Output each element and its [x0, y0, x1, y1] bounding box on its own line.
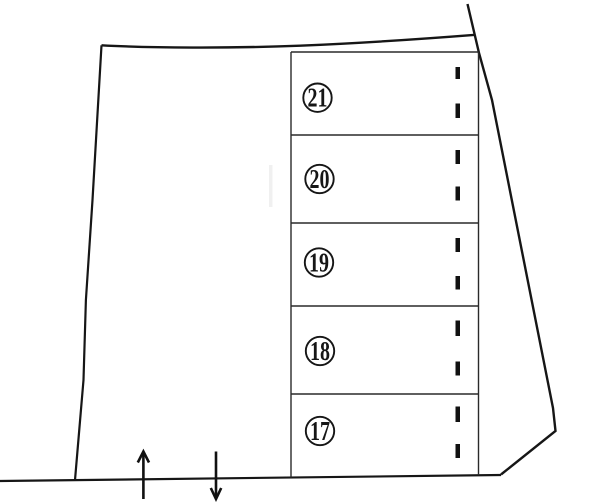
svg-text:17: 17 — [310, 416, 330, 446]
svg-text:20: 20 — [310, 164, 330, 194]
svg-text:21: 21 — [308, 83, 328, 113]
svg-text:18: 18 — [310, 336, 330, 366]
svg-text:19: 19 — [309, 247, 329, 277]
